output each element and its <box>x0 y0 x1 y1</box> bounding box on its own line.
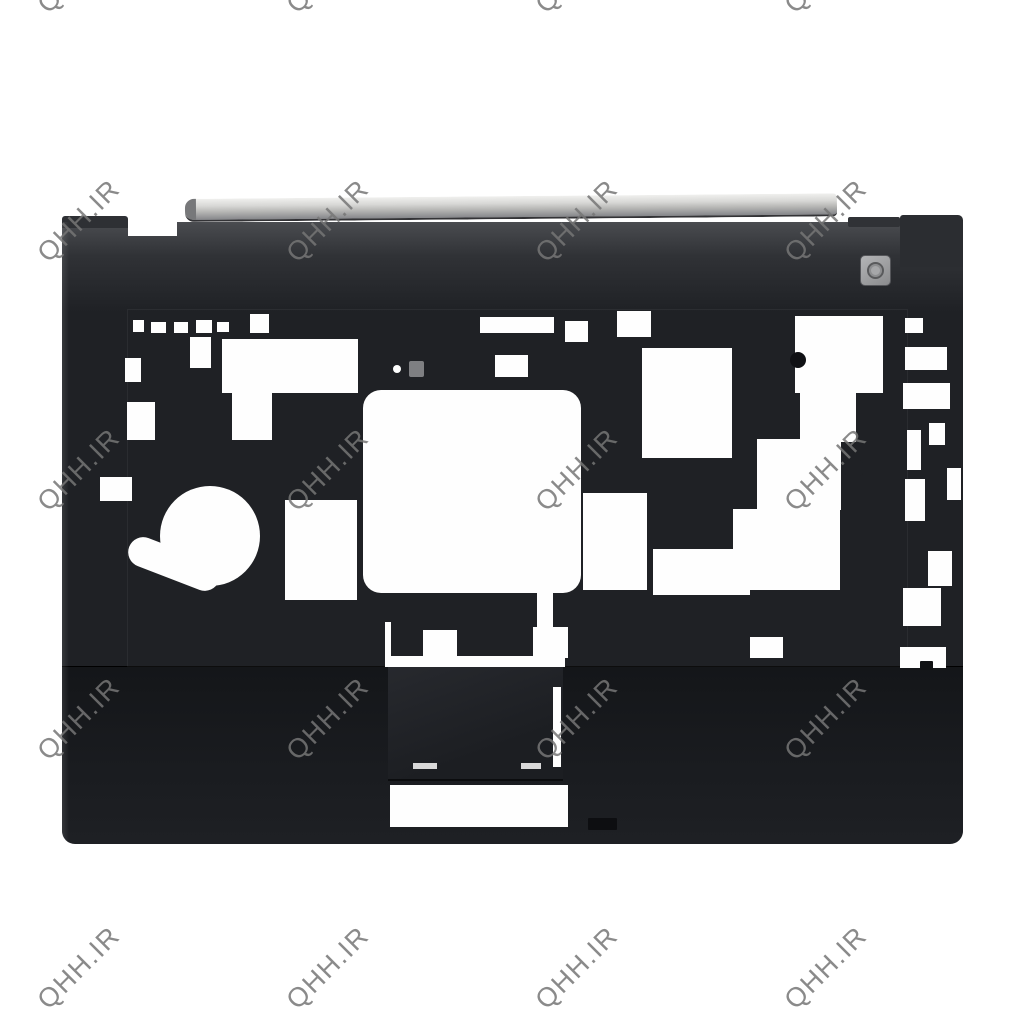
chassis-detail <box>409 361 424 377</box>
chassis-detail <box>588 818 617 830</box>
chassis-detail <box>920 661 933 670</box>
chassis-details-layer <box>0 0 1024 1024</box>
chassis-detail <box>845 460 863 476</box>
product-photo-scene: QHH.IRQHH.IRQHH.IRQHH.IRQHH.IRQHH.IRQHH.… <box>0 0 1024 1024</box>
chassis-detail <box>790 352 806 368</box>
